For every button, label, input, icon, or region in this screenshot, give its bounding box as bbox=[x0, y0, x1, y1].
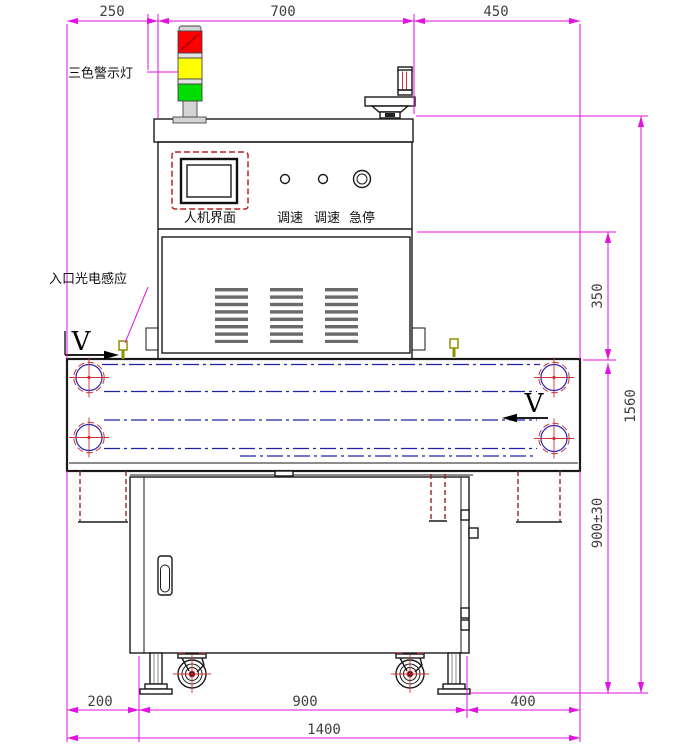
entry-photo-sensor bbox=[119, 341, 127, 359]
speed-knob-2[interactable] bbox=[319, 175, 328, 184]
hmi-label: 人机界面 bbox=[184, 211, 236, 226]
left-angle-bracket bbox=[146, 328, 158, 350]
exit-photo-sensor bbox=[450, 339, 458, 357]
roller-right-bottom bbox=[534, 419, 574, 459]
roller-left-top bbox=[69, 358, 109, 398]
speed-label-2: 调速 bbox=[314, 211, 340, 226]
vent-grille-1 bbox=[215, 288, 248, 343]
vent-grille-3 bbox=[325, 288, 358, 343]
door-handle[interactable] bbox=[158, 556, 172, 595]
conveyor-support-right bbox=[516, 471, 562, 522]
emergency-stop-button-inner bbox=[357, 174, 367, 184]
engineering-drawing-page: 人机界面 调速 调速 急停 V V bbox=[0, 0, 683, 749]
dim-bottom-left: 200 bbox=[87, 694, 112, 710]
conveyor-support-left bbox=[78, 471, 128, 522]
green-light bbox=[178, 84, 202, 101]
direction-mark-return: V bbox=[502, 389, 548, 422]
dimension-texts: 250 700 450 350 1560 900±30 200 900 400 … bbox=[87, 4, 639, 738]
control-panel: 人机界面 调速 调速 急停 bbox=[172, 152, 375, 226]
hmi-screen[interactable] bbox=[187, 165, 231, 197]
conveyor-support-mid bbox=[429, 474, 447, 521]
machine-elevation-drawing: 人机界面 调速 调速 急停 V V bbox=[0, 0, 683, 749]
roller-left-bottom bbox=[69, 418, 109, 458]
estop-label: 急停 bbox=[349, 210, 375, 226]
lower-cabinet bbox=[130, 471, 478, 653]
dim-top-body: 700 bbox=[270, 4, 295, 20]
warning-light-tower bbox=[173, 26, 206, 123]
door-hinge-mid bbox=[461, 608, 469, 618]
direction-v-entry: V bbox=[71, 327, 92, 357]
warning-light-label: 三色警示灯 bbox=[68, 66, 133, 82]
caster-left bbox=[173, 653, 211, 693]
dim-total-width: 1400 bbox=[307, 722, 341, 738]
top-right-device bbox=[365, 67, 415, 118]
right-angle-bracket bbox=[412, 328, 425, 350]
leveling-foot-left bbox=[140, 653, 172, 694]
dim-top-left: 250 bbox=[99, 4, 124, 20]
leader-entry-sensor bbox=[125, 287, 148, 343]
dim-top-right: 450 bbox=[483, 4, 508, 20]
door-hinge-bottom bbox=[461, 620, 469, 630]
door-knob[interactable] bbox=[469, 528, 478, 538]
conveyor bbox=[67, 358, 580, 472]
direction-v-return: V bbox=[524, 389, 545, 419]
direction-mark-entry: V bbox=[65, 327, 119, 359]
dim-cabinet-width: 900 bbox=[292, 694, 317, 710]
leveling-foot-right bbox=[438, 653, 470, 694]
vent-panel bbox=[162, 237, 410, 353]
vent-grille-2 bbox=[270, 288, 303, 343]
dim-belt-height: 900±30 bbox=[590, 498, 606, 549]
dim-bottom-right: 400 bbox=[510, 694, 535, 710]
speed-knob-1[interactable] bbox=[281, 175, 290, 184]
dim-total-height: 1560 bbox=[623, 389, 639, 423]
arrow-left-icon bbox=[502, 414, 517, 422]
caster-right bbox=[391, 653, 429, 693]
yellow-light bbox=[178, 58, 202, 79]
speed-label-1: 调速 bbox=[277, 211, 303, 226]
emergency-stop-button[interactable] bbox=[354, 171, 371, 188]
entry-sensor-label: 入口光电感应 bbox=[49, 271, 127, 287]
dim-panel-height: 350 bbox=[590, 283, 606, 308]
door-hinge-top bbox=[461, 510, 469, 520]
